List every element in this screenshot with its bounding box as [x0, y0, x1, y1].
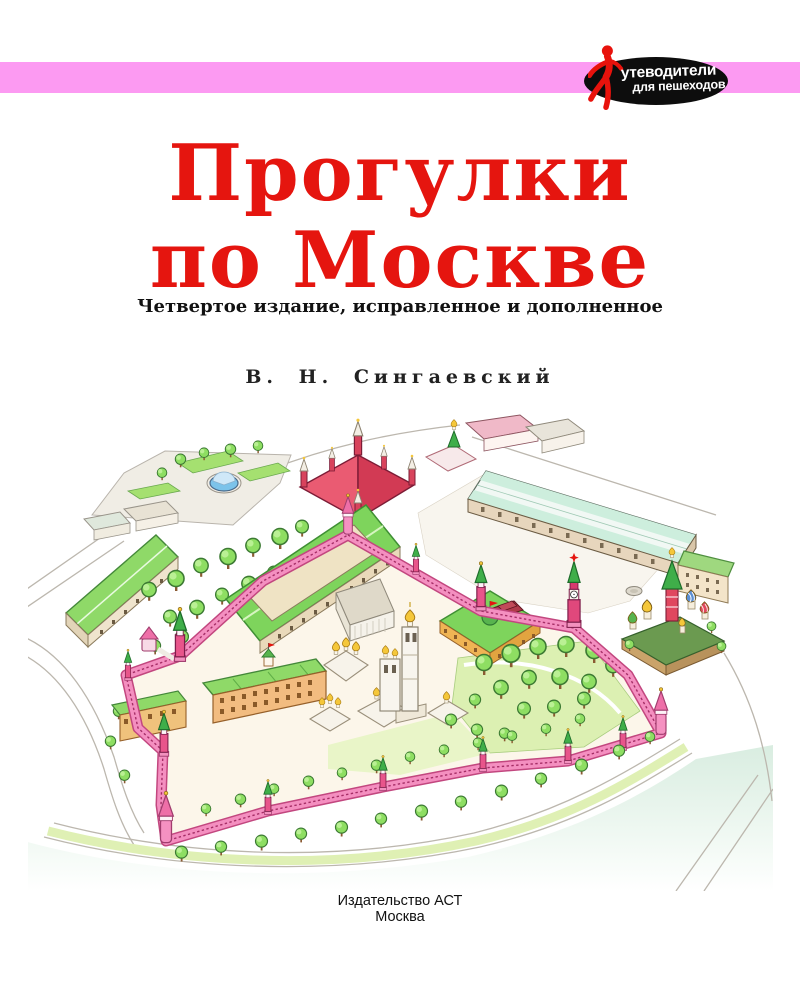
senatskaya-tower	[412, 543, 419, 574]
edition-note: Четвертое издание, исправленное и дополн…	[0, 296, 800, 317]
series-logo-line2: для пешеходов	[632, 78, 726, 94]
kremlin-map-illustration	[28, 413, 773, 891]
publisher-series-logo: утеводители для пешеходов	[584, 57, 728, 105]
book-title-line2: по Москве	[0, 217, 800, 304]
museum-spire	[300, 457, 308, 487]
nikolskaya-street-buildings	[466, 415, 584, 453]
museum-spire	[381, 445, 387, 469]
publisher-city: Москва	[0, 909, 800, 925]
author-name: В. Н. Сингаевский	[0, 366, 800, 388]
book-cover-page: утеводители для пешеходов Прогулки по Мо…	[0, 0, 800, 1000]
book-title: Прогулки по Москве	[0, 130, 800, 304]
walking-person-icon	[588, 44, 624, 110]
museum-spire	[353, 419, 363, 455]
series-logo-text: утеводители для пешеходов	[621, 61, 726, 95]
lobnoye-mesto	[626, 587, 642, 596]
beklemishevskaya-tower	[654, 688, 667, 735]
komendantskaya-tower	[124, 649, 131, 680]
kazan-cathedral	[426, 420, 476, 471]
book-title-line1: Прогулки	[0, 130, 800, 217]
museum-spire	[408, 455, 416, 485]
publisher-name: Издательство АСТ	[0, 893, 800, 909]
publisher-block: Издательство АСТ Москва	[0, 893, 800, 925]
manege-building	[66, 535, 178, 647]
